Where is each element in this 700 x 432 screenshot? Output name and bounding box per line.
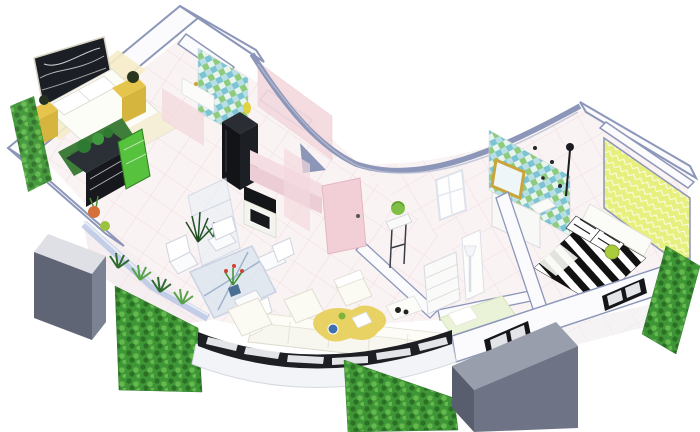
nightstand-plant	[39, 95, 49, 105]
floorplan-render	[0, 0, 700, 432]
stand-plant	[391, 201, 405, 215]
door-handle	[356, 214, 360, 218]
blue-bowl	[328, 324, 338, 334]
gold-faucet	[194, 82, 198, 86]
dresser-plant	[92, 133, 104, 145]
wardrobe-panel	[462, 230, 484, 300]
hall-lattice-window	[436, 170, 466, 220]
dresser-plant	[77, 139, 91, 153]
green-cup	[339, 313, 346, 320]
nightstand-plant	[127, 71, 139, 83]
dresser-plant	[103, 128, 113, 138]
floorplan-svg	[0, 0, 700, 432]
yellow-vase	[243, 102, 251, 114]
green-pillow	[605, 245, 619, 259]
pink-door	[322, 178, 366, 254]
